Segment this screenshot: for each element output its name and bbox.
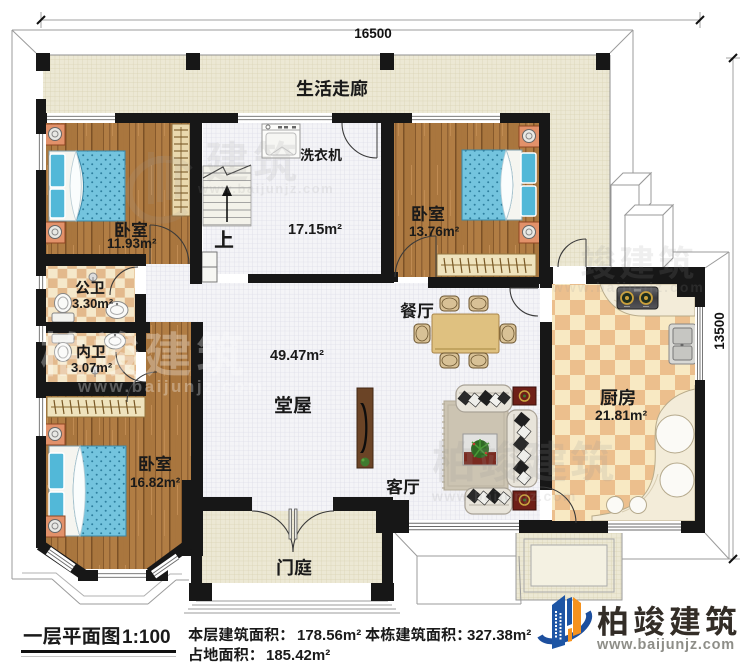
svg-text:www.baijunjz.com: www.baijunjz.com — [431, 488, 577, 504]
svg-text:17.15m²: 17.15m² — [288, 222, 342, 238]
svg-text:13500: 13500 — [712, 312, 727, 350]
svg-text:www.baijunjz.com: www.baijunjz.com — [551, 279, 705, 295]
svg-text:49.47m²: 49.47m² — [270, 348, 324, 364]
svg-text:www.baijunjz.com: www.baijunjz.com — [77, 377, 265, 396]
svg-text:16.82m²: 16.82m² — [130, 475, 181, 490]
svg-text:16500: 16500 — [354, 26, 392, 41]
svg-text:3.07m²: 3.07m² — [71, 360, 113, 375]
svg-text:www.baijunjz.com: www.baijunjz.com — [197, 181, 334, 196]
svg-text:327.38m²: 327.38m² — [467, 627, 531, 644]
svg-text:3.30m²: 3.30m² — [72, 296, 114, 311]
svg-text:1:100: 1:100 — [122, 627, 171, 648]
svg-text:21.81m²: 21.81m² — [595, 407, 647, 423]
svg-text:13.76m²: 13.76m² — [409, 224, 460, 239]
svg-text:www.baijunjz.com: www.baijunjz.com — [596, 637, 735, 653]
svg-text:178.56m²: 178.56m² — [297, 627, 361, 644]
svg-text:11.93m²: 11.93m² — [107, 236, 157, 251]
svg-text:185.42m²: 185.42m² — [266, 647, 330, 662]
